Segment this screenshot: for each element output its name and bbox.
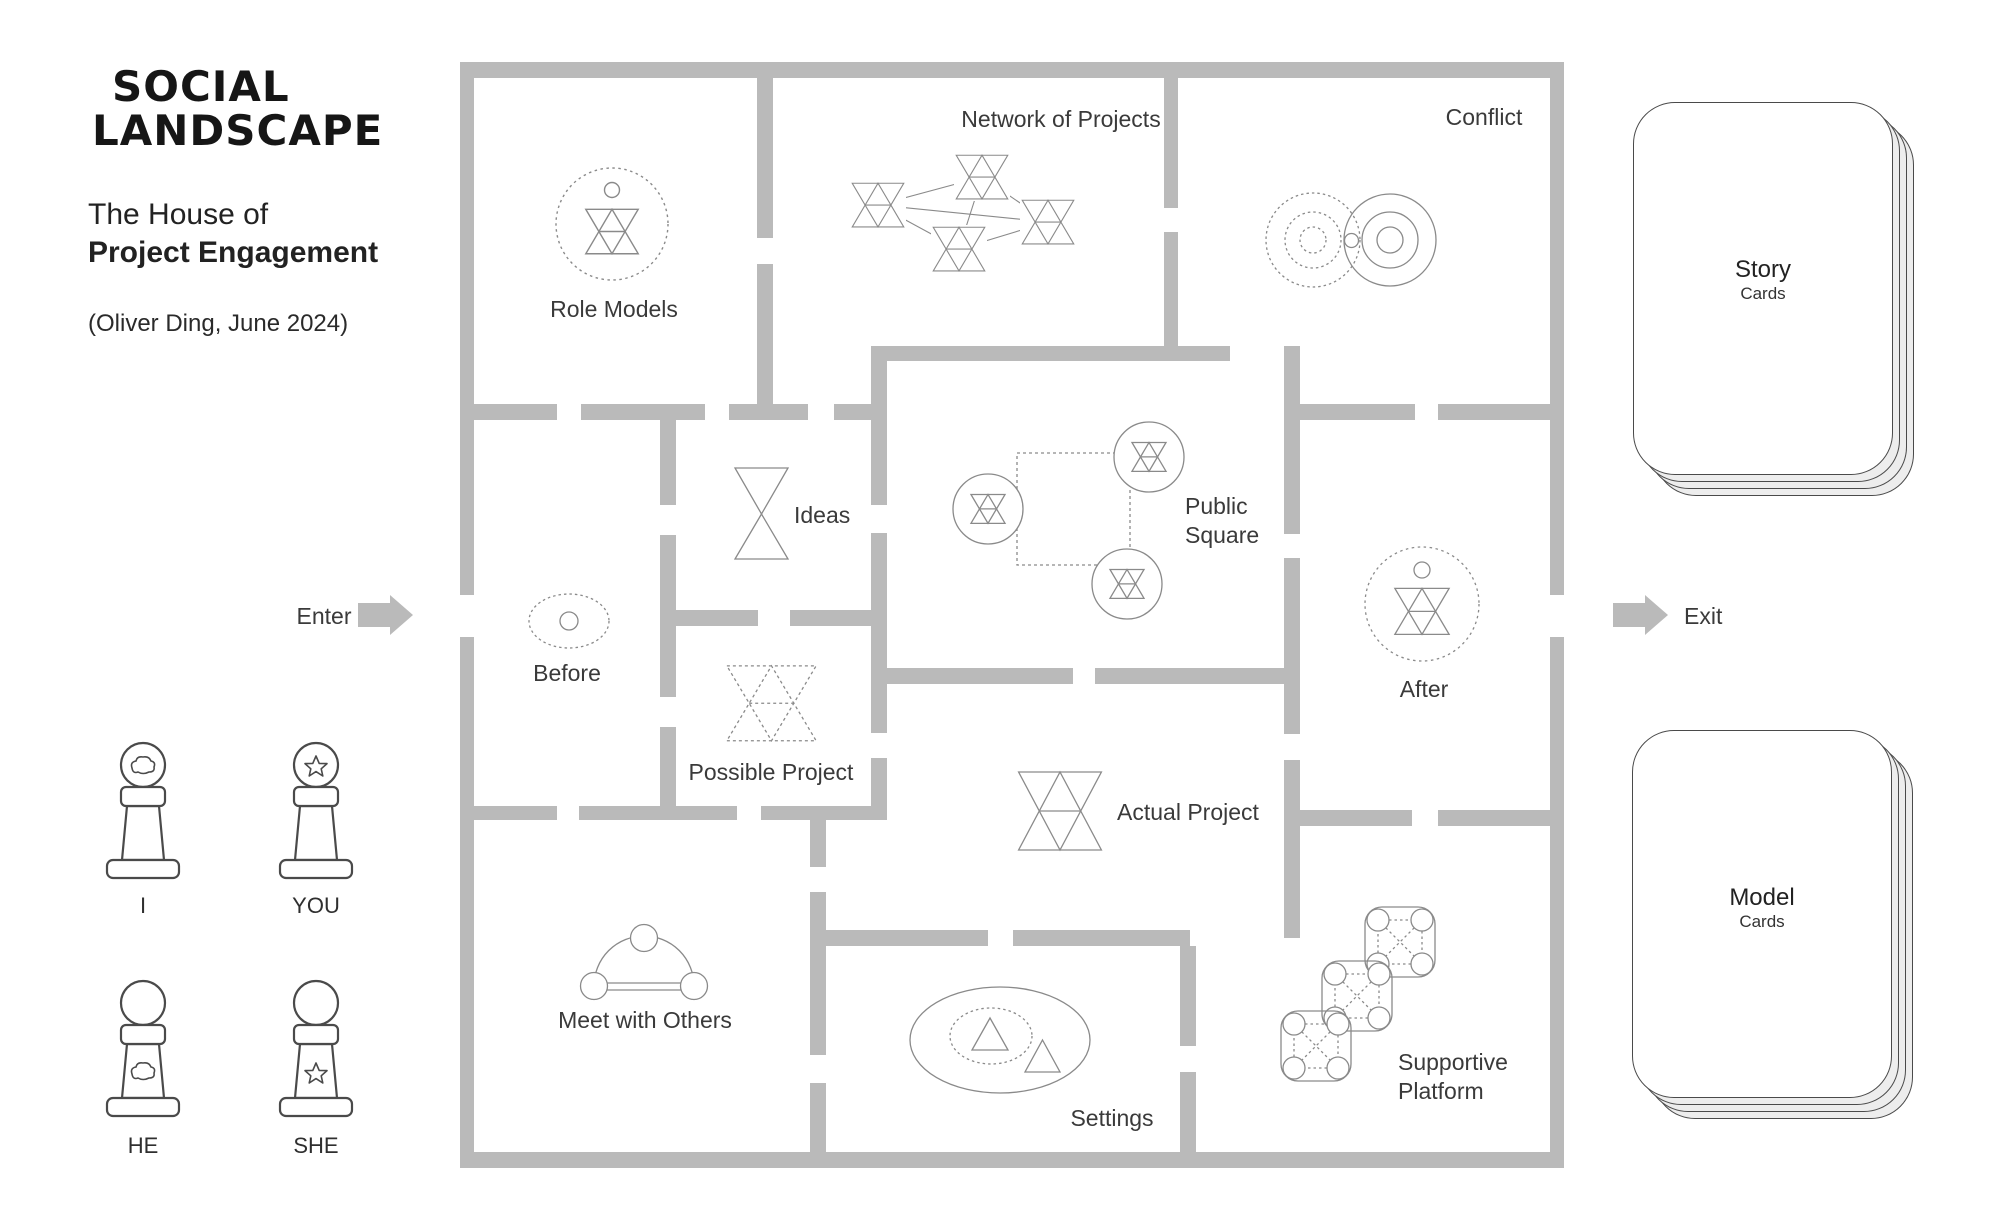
room-label-before: Before xyxy=(533,659,601,688)
pawn-she xyxy=(280,981,352,1116)
deck-subtitle: Cards xyxy=(1634,283,1892,305)
settings-icon xyxy=(910,987,1090,1093)
possible-project-icon xyxy=(727,666,816,741)
exit-label: Exit xyxy=(1684,602,1722,631)
room-label-network-of-projects: Network of Projects xyxy=(961,105,1160,134)
room-label-after: After xyxy=(1400,675,1449,704)
story-cards-deck: Story Cards xyxy=(1633,102,1893,475)
room-label-actual-project: Actual Project xyxy=(1117,798,1259,827)
enter-label: Enter xyxy=(297,602,352,631)
pawn-label-she: SHE xyxy=(293,1133,338,1159)
room-label-ideas: Ideas xyxy=(794,501,850,530)
room-label-supportive-platform: Supportive Platform xyxy=(1398,1048,1508,1106)
ideas-icon xyxy=(735,468,788,559)
after-icon xyxy=(1365,547,1479,661)
deck-title: Story xyxy=(1634,257,1892,283)
story-card-front: Story Cards xyxy=(1633,102,1893,475)
social-landscape-board: SOCIAL LANDSCAPE The House of Project En… xyxy=(0,0,2000,1230)
deck-subtitle: Cards xyxy=(1633,911,1891,933)
public-square-icon xyxy=(953,422,1184,619)
pawn-i xyxy=(107,743,179,878)
before-icon xyxy=(529,594,609,648)
pawn-label-you: YOU xyxy=(292,893,340,919)
model-card-front: Model Cards xyxy=(1632,730,1892,1098)
meet-with-others-icon xyxy=(581,925,708,1000)
room-label-public-square: Public Square xyxy=(1185,492,1259,550)
platform-unit xyxy=(1281,1011,1351,1081)
room-label-settings: Settings xyxy=(1070,1104,1153,1133)
pawn-you xyxy=(280,743,352,878)
room-label-possible-project: Possible Project xyxy=(689,758,854,787)
enter-arrow-icon xyxy=(358,595,413,635)
network-of-projects-icon xyxy=(850,153,1076,273)
exit-arrow-icon xyxy=(1613,595,1668,635)
pawn-he xyxy=(107,981,179,1116)
actual-project-icon xyxy=(1019,772,1102,850)
conflict-icon xyxy=(1266,193,1436,287)
room-label-role-models: Role Models xyxy=(550,295,678,324)
room-label-conflict: Conflict xyxy=(1446,103,1523,132)
role-models-icon xyxy=(556,168,668,280)
room-label-meet-with-others: Meet with Others xyxy=(558,1006,732,1035)
pawn-label-he: HE xyxy=(128,1133,159,1159)
pawn-label-i: I xyxy=(140,893,146,919)
model-cards-deck: Model Cards xyxy=(1632,730,1892,1098)
deck-title: Model xyxy=(1633,885,1891,911)
